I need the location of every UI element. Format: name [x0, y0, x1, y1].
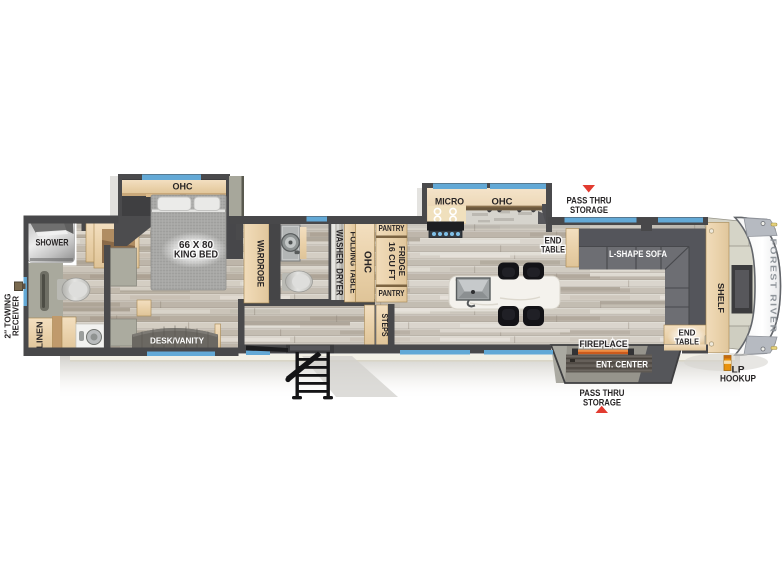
svg-text:16 CU FT: 16 CU FT [387, 242, 397, 281]
svg-text:OHC: OHC [173, 182, 193, 193]
svg-text:HOOKUP: HOOKUP [720, 374, 756, 384]
svg-text:WARDROBE: WARDROBE [256, 240, 266, 287]
svg-text:WASHER DRYER: WASHER DRYER [335, 230, 345, 296]
svg-text:RECEIVER: RECEIVER [11, 296, 21, 336]
svg-text:FRIDGE: FRIDGE [397, 246, 407, 276]
svg-text:PANTRY: PANTRY [379, 224, 406, 233]
svg-text:KING BED: KING BED [174, 250, 218, 261]
svg-text:PANTRY: PANTRY [379, 289, 406, 298]
svg-text:L-SHAPE SOFA: L-SHAPE SOFA [609, 249, 667, 260]
svg-text:TABLE: TABLE [541, 245, 565, 255]
svg-text:SHOWER: SHOWER [36, 238, 69, 249]
svg-text:FIREPLACE: FIREPLACE [580, 339, 628, 349]
svg-text:MICRO: MICRO [435, 197, 464, 207]
svg-text:SHELF: SHELF [716, 283, 726, 313]
svg-text:FOREST RIVER: FOREST RIVER [769, 239, 778, 334]
svg-text:DESK/VANITY: DESK/VANITY [150, 336, 204, 346]
svg-text:STORAGE: STORAGE [570, 205, 608, 216]
svg-text:OHC: OHC [492, 197, 514, 207]
svg-text:LINEN: LINEN [35, 322, 45, 349]
svg-text:ENT. CENTER: ENT. CENTER [596, 360, 648, 370]
svg-text:OHC: OHC [362, 251, 374, 273]
